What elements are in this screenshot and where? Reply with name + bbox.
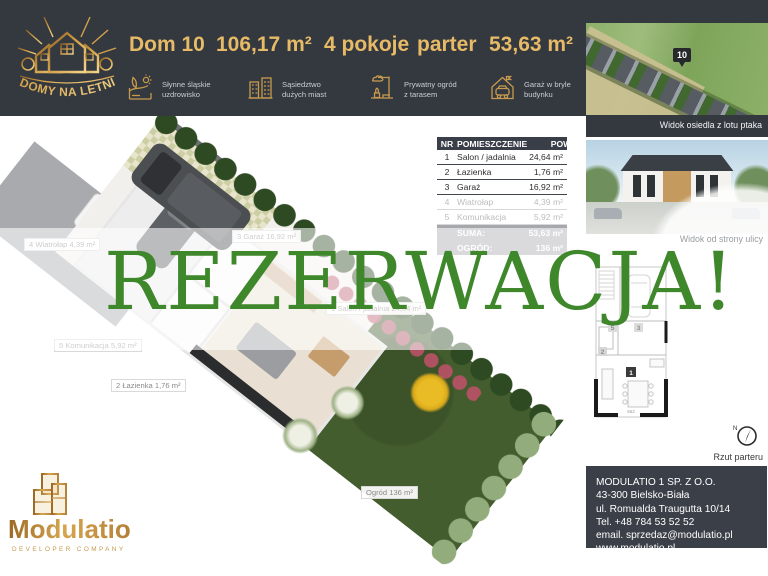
- modulatio-wordmark: Modulatio: [8, 514, 131, 544]
- floor-name: parter: [417, 33, 477, 57]
- garden-icon: [369, 74, 396, 101]
- room-label-lazienka: 2 Łazienka 1,76 m²: [111, 379, 186, 392]
- svg-text:2: 2: [601, 349, 605, 356]
- header-band: DOMY NA LETNIEJ Dom 10 106,17 m² 4 pokoj…: [0, 0, 586, 116]
- website: www.modulatio.pl: [596, 542, 767, 555]
- modulatio-logo: Modulatio DEVELOPER COMPANY: [4, 468, 176, 560]
- phone: Tel. +48 784 53 52 52: [596, 516, 767, 529]
- houses-icon: [36, 33, 98, 72]
- modulatio-tagline: DEVELOPER COMPANY: [12, 546, 125, 553]
- feature-city: Sąsiedztwodużych miast: [247, 74, 326, 101]
- svg-text:562: 562: [627, 409, 635, 414]
- rooms-count: 4 pokoje: [324, 33, 409, 57]
- rezerwacja-overlay: REZERWACJA!: [104, 236, 714, 328]
- table-row: 3 Garaż 16,92 m²: [437, 180, 567, 195]
- feature-label: Słynne śląskieuzdrowisko: [162, 74, 211, 99]
- feature-label: Prywatny ogródz tarasem: [404, 74, 457, 99]
- street-address: ul. Romualda Traugutta 10/14: [596, 503, 767, 516]
- aerial-photo: 10: [586, 23, 768, 115]
- flyer-page: 4 Wiatrołap 4,39 m² 3 Garaż 16,92 m² 5 K…: [0, 0, 768, 576]
- compass-icon: N: [726, 421, 764, 451]
- email: email. sprzedaz@modulatio.pl: [596, 529, 767, 542]
- unit-10-pin: 10: [673, 48, 691, 62]
- street-photo: [586, 140, 768, 234]
- street-car: [594, 208, 622, 219]
- modulatio-building-icon: [34, 474, 66, 514]
- svg-text:N: N: [733, 426, 737, 432]
- svg-text:1: 1: [629, 370, 633, 377]
- city-icon: [247, 74, 274, 101]
- spa-icon: [127, 74, 154, 101]
- caption-aerial: Widok osiedla z lotu ptaka: [586, 120, 762, 130]
- table-row-faded: 4 Wiatrołap 4,39 m²: [437, 195, 567, 210]
- total-area: 106,17 m²: [216, 33, 312, 57]
- contact-box: MODULATIO 1 SP. Z O.O. 43-300 Bielsko-Bi…: [586, 466, 767, 548]
- feature-garage: Garaż w brylebudynku: [489, 74, 571, 101]
- domy-na-letniej-logo: DOMY NA LETNIEJ: [8, 4, 126, 110]
- feature-garden: Prywatny ogródz tarasem: [369, 74, 457, 101]
- house-number: Dom 10: [129, 33, 205, 57]
- garage-icon: [489, 74, 516, 101]
- table-row: 1 Salon / jadalnia 24,64 m²: [437, 150, 567, 165]
- room-label-ogrod: Ogród 136 m²: [361, 486, 418, 499]
- company-name: MODULATIO 1 SP. Z O.O.: [596, 476, 767, 489]
- table-row-faded: 5 Komunikacja 5,92 m²: [437, 210, 567, 225]
- feature-label: Sąsiedztwodużych miast: [282, 74, 326, 99]
- table-header: NR POMIESZCZENIE POW.: [437, 137, 567, 150]
- feature-spa: Słynne śląskieuzdrowisko: [127, 74, 211, 101]
- table-row: 2 Łazienka 1,76 m²: [437, 165, 567, 180]
- caption-plan: Rzut parteru: [586, 452, 763, 462]
- usable-area: 53,63 m²: [489, 33, 573, 57]
- house-roof: [617, 155, 737, 171]
- postal-city: 43-300 Bielsko-Biała: [596, 489, 767, 502]
- feature-label: Garaż w brylebudynku: [524, 74, 571, 99]
